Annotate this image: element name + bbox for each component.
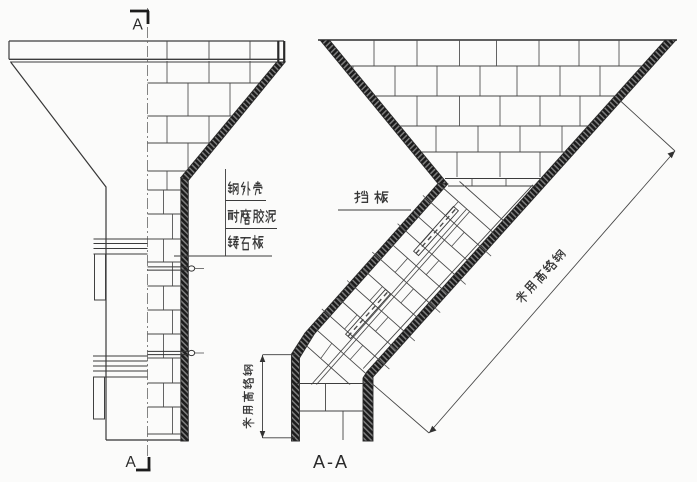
svg-text:A-A: A-A [313,452,349,472]
svg-text:A: A [133,17,144,34]
svg-text:A: A [126,454,137,471]
